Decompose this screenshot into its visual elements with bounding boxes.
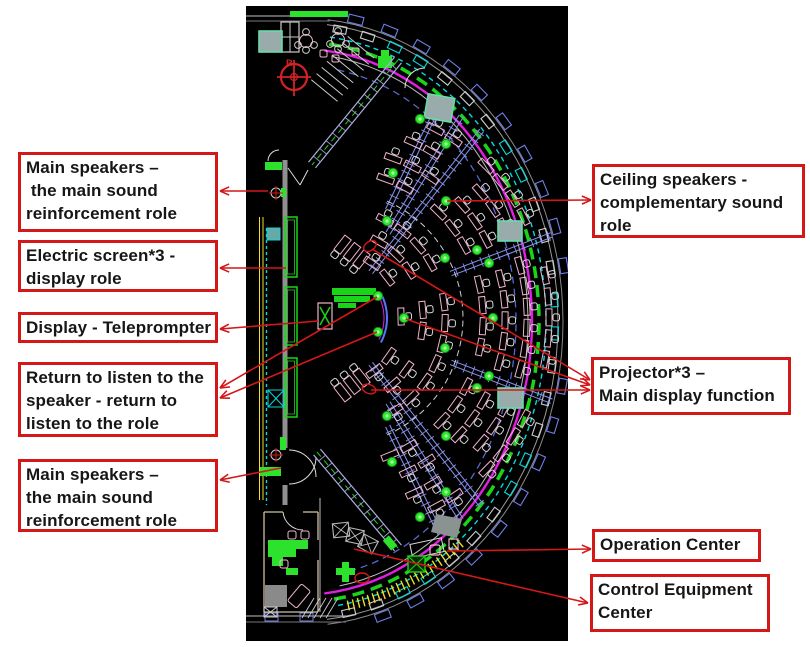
label-line: Operation Center (600, 533, 753, 556)
label-line: reinforcement role (26, 509, 210, 532)
label-electric-screen: Electric screen*3 -display role (18, 240, 218, 292)
label-line: Control Equipment (598, 578, 762, 601)
label-line: Projector*3 – (599, 361, 783, 384)
label-control-equipment: Control EquipmentCenter (590, 574, 770, 632)
label-line: Electric screen*3 - (26, 244, 210, 267)
label-main-speakers-bottom: Main speakers –the main soundreinforceme… (18, 459, 218, 532)
label-ceiling-speakers: Ceiling speakers -complementary soundrol… (592, 164, 805, 238)
label-line: Center (598, 601, 762, 624)
label-line: speaker - return to (26, 389, 210, 412)
arrow-head-projector (581, 390, 590, 394)
arrow-head-projector (584, 372, 590, 380)
label-line: Main speakers – (26, 463, 210, 486)
label-projector: Projector*3 –Main display function (591, 357, 791, 415)
arrow-head-display-teleprompter (220, 329, 229, 332)
label-line: the main sound (26, 179, 210, 202)
arrow-head-main-speakers-bottom (220, 474, 228, 480)
label-line: Main speakers – (26, 156, 210, 179)
arrow-head-display-teleprompter (220, 324, 229, 329)
label-line: listen to the role (26, 412, 210, 435)
arrow-head-main-speakers-top (220, 187, 229, 191)
auditorium-cad-plan: R (246, 6, 568, 641)
screenshot-root: R Main speakers – the main soundreinforc… (0, 0, 810, 647)
arrow-head-main-speakers-bottom (220, 480, 230, 482)
label-display-teleprompter: Display - Teleprompter (18, 312, 218, 343)
arrow-head-ceiling-speakers (582, 196, 591, 200)
label-return-listen: Return to listen to thespeaker - return … (18, 362, 218, 437)
label-line: Return to listen to the (26, 366, 210, 389)
label-line: Display - Teleprompter (26, 316, 210, 339)
label-main-speakers-top: Main speakers – the main soundreinforcem… (18, 152, 218, 232)
arrow-head-projector (580, 385, 590, 386)
svg-text:R: R (286, 58, 293, 68)
label-line: display role (26, 267, 210, 290)
label-line: role (600, 214, 797, 237)
label-line: complementary sound (600, 191, 797, 214)
label-line: Main display function (599, 384, 783, 407)
arrow-head-electric-screen (220, 264, 229, 268)
arrow-head-return-listen (220, 391, 227, 398)
arrow-head-operation-center (582, 549, 591, 553)
arrow-head-projector (583, 378, 590, 385)
label-line: reinforcement role (26, 202, 210, 225)
arrow-head-return-listen (220, 380, 226, 388)
arrow-head-control-equipment (580, 597, 588, 603)
arrow-head-ceiling-speakers (582, 200, 591, 204)
arrow-head-projector (581, 386, 590, 390)
arrow-head-control-equipment (578, 603, 588, 605)
arrow-head-electric-screen (220, 268, 229, 272)
label-line: the main sound (26, 486, 210, 509)
arrow-head-main-speakers-top (220, 191, 229, 195)
arrow-head-operation-center (582, 545, 591, 549)
arrow-head-projector (580, 379, 590, 380)
arrow-head-return-listen (220, 387, 230, 388)
label-operation-center: Operation Center (592, 529, 761, 562)
label-line: Ceiling speakers - (600, 168, 797, 191)
